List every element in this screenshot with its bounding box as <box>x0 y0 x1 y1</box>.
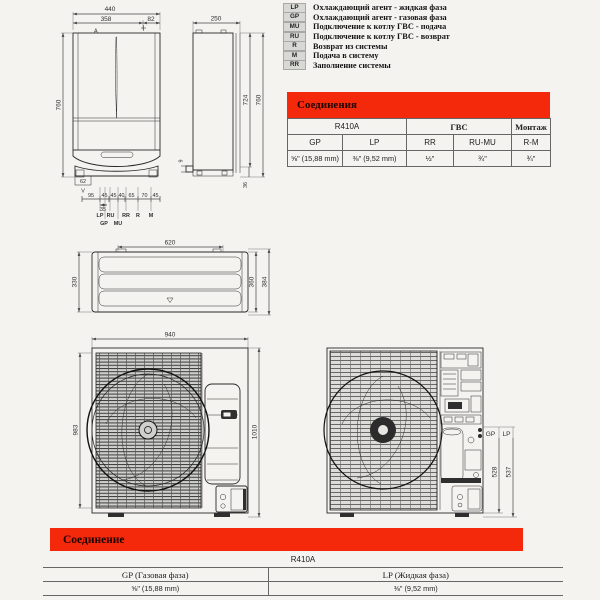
legend-key-gp: GP <box>283 12 306 22</box>
label-gp: GP <box>486 431 495 438</box>
bottom-col-gp: GP (Газовая фаза) <box>43 568 268 582</box>
section-marker-a: A <box>94 29 98 35</box>
legend-row-rr: RR Заполнение системы <box>283 61 583 71</box>
port-mu: MU <box>114 221 122 227</box>
legend-key-ru: RU <box>283 32 306 42</box>
col-r-m: R-M <box>512 135 551 151</box>
port-rr: RR <box>122 213 130 219</box>
dim-40: 40 <box>119 193 125 199</box>
legend-desc-gp: Охлаждающий агент - газовая фаза <box>313 13 447 22</box>
col-gp: GP <box>288 135 343 151</box>
dim-95: 95 <box>88 193 94 199</box>
dim-indoor-height: 760 <box>56 99 63 110</box>
legend-row-mu: MU Подключение к котлу ГВС - подача <box>283 22 583 32</box>
val-ru-mu: ¾" <box>454 151 512 167</box>
label-v: V <box>81 189 85 195</box>
legend-key-rr: RR <box>283 60 306 70</box>
legend-row-r: R Возврат из системы <box>283 41 583 51</box>
outdoor-unit-top-view: 620 330 360 384 <box>72 240 272 316</box>
dim-outdoor-depth-384: 384 <box>262 276 269 287</box>
dim-pipe-9: 9 <box>179 160 185 163</box>
legend: LP Охлаждающий агент - жидкая фаза GP Ох… <box>283 3 583 70</box>
col-ru-mu: RU-MU <box>454 135 512 151</box>
dim-bottom-62: 62 <box>80 179 86 185</box>
bottom-col-lp: LP (Жидкая фаза) <box>268 568 563 582</box>
legend-key-mu: MU <box>283 22 306 32</box>
dim-70: 70 <box>142 193 148 199</box>
connection-title: Соединение <box>63 534 125 546</box>
connections-title: Соединения <box>297 99 357 111</box>
dim-outdoor-top-width: 620 <box>165 240 176 247</box>
val-rr: ½" <box>407 151 454 167</box>
bottom-val-lp: ⅜" (9,52 mm) <box>268 582 563 596</box>
val-gp: ⅝" (15,88 mm) <box>288 151 343 167</box>
indoor-unit-side-view: 250 9 724 760 36 <box>179 16 266 189</box>
connections-header: Соединения <box>287 92 550 118</box>
port-gp: GP <box>100 221 108 227</box>
dim-outdoor-depth-330: 330 <box>72 276 79 287</box>
dim-base-36: 36 <box>243 182 249 188</box>
legend-desc-mu: Подключение к котлу ГВС - подача <box>313 22 446 31</box>
dim-indoor-width: 440 <box>105 6 116 13</box>
dim-45b: 45 <box>111 193 117 199</box>
dim-indoor-total-height: 760 <box>256 94 263 105</box>
bottom-val-gp: ⅝" (15,88 mm) <box>43 582 268 596</box>
legend-desc-rr: Заполнение системы <box>313 61 391 70</box>
val-r-m: ¾" <box>512 151 551 167</box>
dim-indoor-depth: 250 <box>211 16 222 23</box>
outdoor-unit-internal-view: GP LP 528 537 <box>324 348 517 517</box>
legend-desc-lp: Охлаждающий агент - жидкая фаза <box>313 3 447 12</box>
legend-key-m: M <box>283 51 306 61</box>
group-header-row: R410A ГВС Монтаж <box>288 119 551 135</box>
technical-drawings: 440 358 82 A 760 62 V <box>0 0 600 600</box>
dim-indoor-inner-height: 724 <box>243 94 250 105</box>
legend-row-gp: GP Охлаждающий агент - газовая фаза <box>283 13 583 23</box>
column-header-row: GP LP RR RU-MU R-M <box>288 135 551 151</box>
group-gvs: ГВС <box>407 119 512 135</box>
dim-outdoor-height-1010: 1010 <box>252 424 259 439</box>
values-row: ⅝" (15,88 mm) ⅜" (9,52 mm) ½" ¾" ¾" <box>288 151 551 167</box>
bottom-connection-table: GP (Газовая фаза) LP (Жидкая фаза) ⅝" (1… <box>43 567 563 596</box>
col-rr: RR <box>407 135 454 151</box>
bottom-refrigerant: R410A <box>43 555 563 564</box>
port-m: M <box>149 213 154 219</box>
port-lp: LP <box>97 213 104 219</box>
col-lp: LP <box>343 135 407 151</box>
label-lp: LP <box>503 431 511 438</box>
legend-row-ru: RU Подключение к котлу ГВС - возврат <box>283 32 583 42</box>
dim-outdoor-width: 940 <box>165 332 176 339</box>
dim-45a: 45 <box>102 193 108 199</box>
indoor-unit-front-view: 440 358 82 A 760 62 V <box>56 6 161 227</box>
legend-row-m: M Подача в систему <box>283 51 583 61</box>
bottom-values-row: ⅝" (15,88 mm) ⅜" (9,52 mm) <box>43 582 563 596</box>
bottom-header-row: GP (Газовая фаза) LP (Жидкая фаза) <box>43 568 563 582</box>
legend-key-r: R <box>283 41 306 51</box>
legend-desc-ru: Подключение к котлу ГВС - возврат <box>313 32 450 41</box>
group-montage: Монтаж <box>512 119 551 135</box>
dim-gp-height: 528 <box>492 466 499 477</box>
dim-outdoor-depth-360: 360 <box>249 276 256 287</box>
group-r410a: R410A <box>288 119 407 135</box>
connection-header: Соединение <box>50 528 523 551</box>
val-lp: ⅜" (9,52 mm) <box>343 151 407 167</box>
legend-row-lp: LP Охлаждающий агент - жидкая фаза <box>283 3 583 13</box>
dim-65: 65 <box>129 193 135 199</box>
connections-table: R410A ГВС Монтаж GP LP RR RU-MU R-M ⅝" (… <box>287 118 551 167</box>
dim-45c: 45 <box>153 193 159 199</box>
dim-indoor-width-right: 82 <box>147 16 155 23</box>
legend-desc-m: Подача в систему <box>313 51 379 60</box>
dim-lp-height: 537 <box>506 466 513 477</box>
dim-outdoor-height-983: 983 <box>73 424 80 435</box>
legend-desc-r: Возврат из системы <box>313 42 387 51</box>
port-r: R <box>136 213 140 219</box>
legend-key-lp: LP <box>283 3 306 13</box>
dim-indoor-width-left: 358 <box>101 16 112 23</box>
port-ru: RU <box>107 213 115 219</box>
outdoor-unit-front-view: 940 983 101 <box>73 332 262 518</box>
